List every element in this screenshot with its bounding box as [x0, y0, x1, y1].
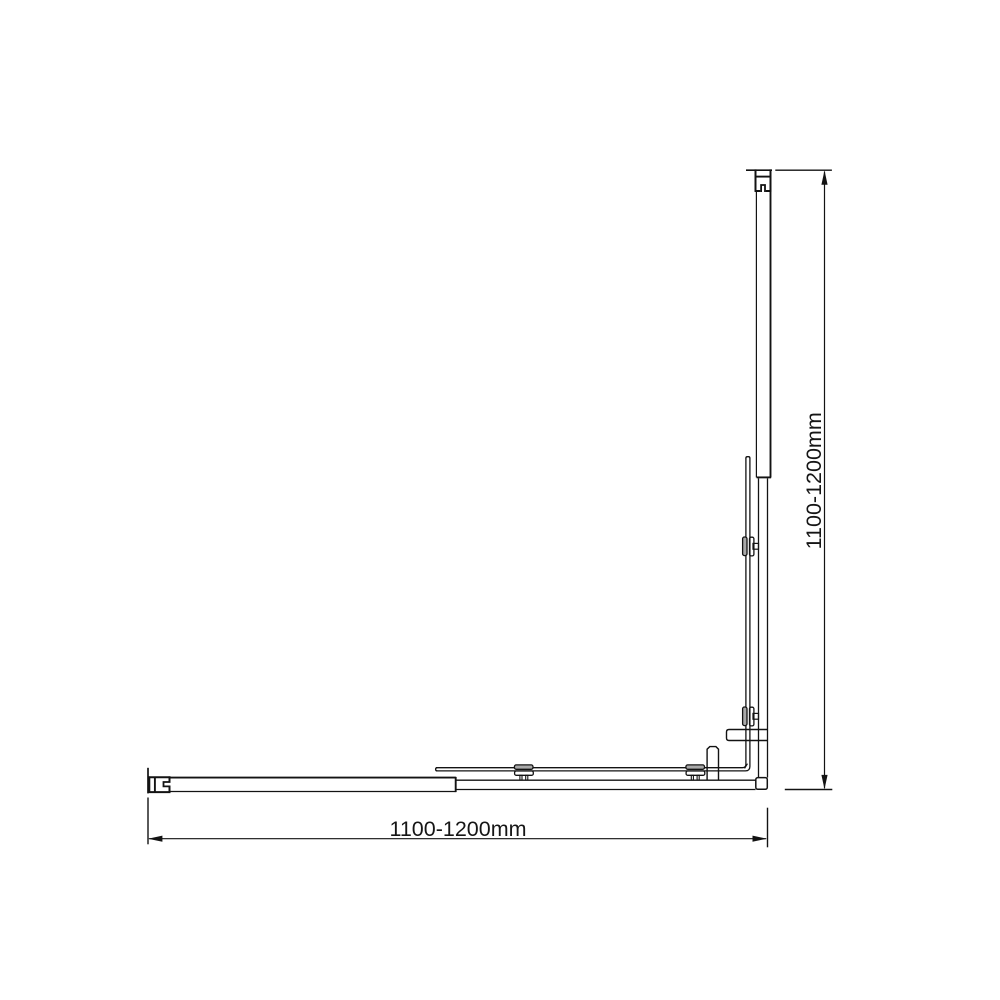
svg-text:1100-1200mm: 1100-1200mm: [802, 412, 826, 549]
svg-text:1100-1200mm: 1100-1200mm: [389, 817, 526, 841]
